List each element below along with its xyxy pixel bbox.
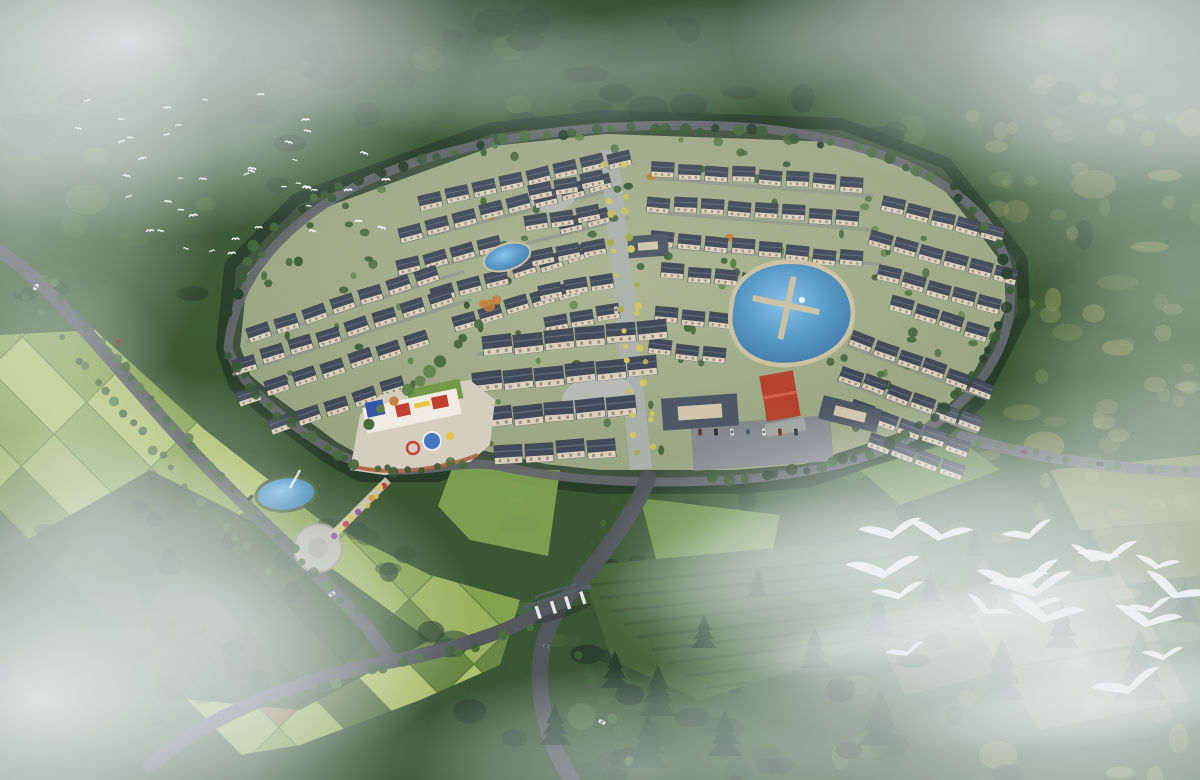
aerial-render-mountain-residential-community bbox=[0, 0, 1200, 780]
atmosphere-tone bbox=[0, 0, 1200, 780]
